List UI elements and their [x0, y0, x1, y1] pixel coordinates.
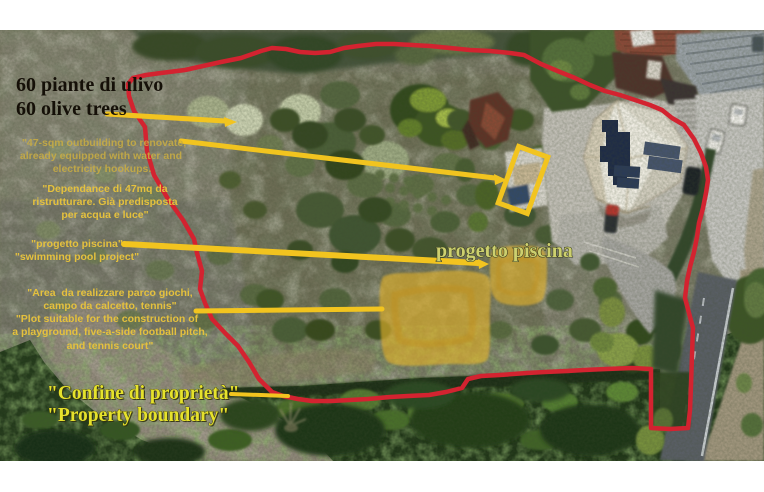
svg-text:per acqua e luce": per acqua e luce": [61, 209, 148, 221]
svg-text:"47-sqm outbuilding to renovat: "47-sqm outbuilding to renovate,: [22, 137, 186, 149]
svg-text:"progetto piscina": "progetto piscina": [31, 238, 123, 250]
svg-text:electricity hookups.: electricity hookups.: [53, 163, 152, 175]
svg-text:"swimming pool project": "swimming pool project": [15, 251, 139, 263]
svg-text:"Property boundary": "Property boundary": [47, 405, 229, 426]
svg-text:"Confine di proprietà": "Confine di proprietà": [47, 383, 239, 404]
svg-text:60 piante di ulivo: 60 piante di ulivo: [16, 74, 163, 96]
svg-text:"Area da realizzare parco gio: "Area da realizzare parco giochi,: [27, 287, 193, 299]
svg-text:ristrutturare. Già predisposta: ristrutturare. Già predisposta: [32, 196, 177, 208]
svg-text:and tennis court": and tennis court": [67, 340, 154, 352]
svg-text:campo da calcetto, tennis": campo da calcetto, tennis": [43, 300, 176, 312]
svg-text:a playground, five-a-side foot: a playground, five-a-side football pitch…: [12, 326, 208, 338]
svg-text:already equipped with water an: already equipped with water and: [20, 150, 182, 162]
svg-text:progetto piscina: progetto piscina: [436, 240, 573, 262]
svg-text:"Dependance di 47mq da: "Dependance di 47mq da: [42, 183, 167, 195]
svg-text:60 olive trees: 60 olive trees: [16, 98, 127, 120]
svg-text:"Plot suitable for the constru: "Plot suitable for the construction of: [16, 313, 199, 325]
